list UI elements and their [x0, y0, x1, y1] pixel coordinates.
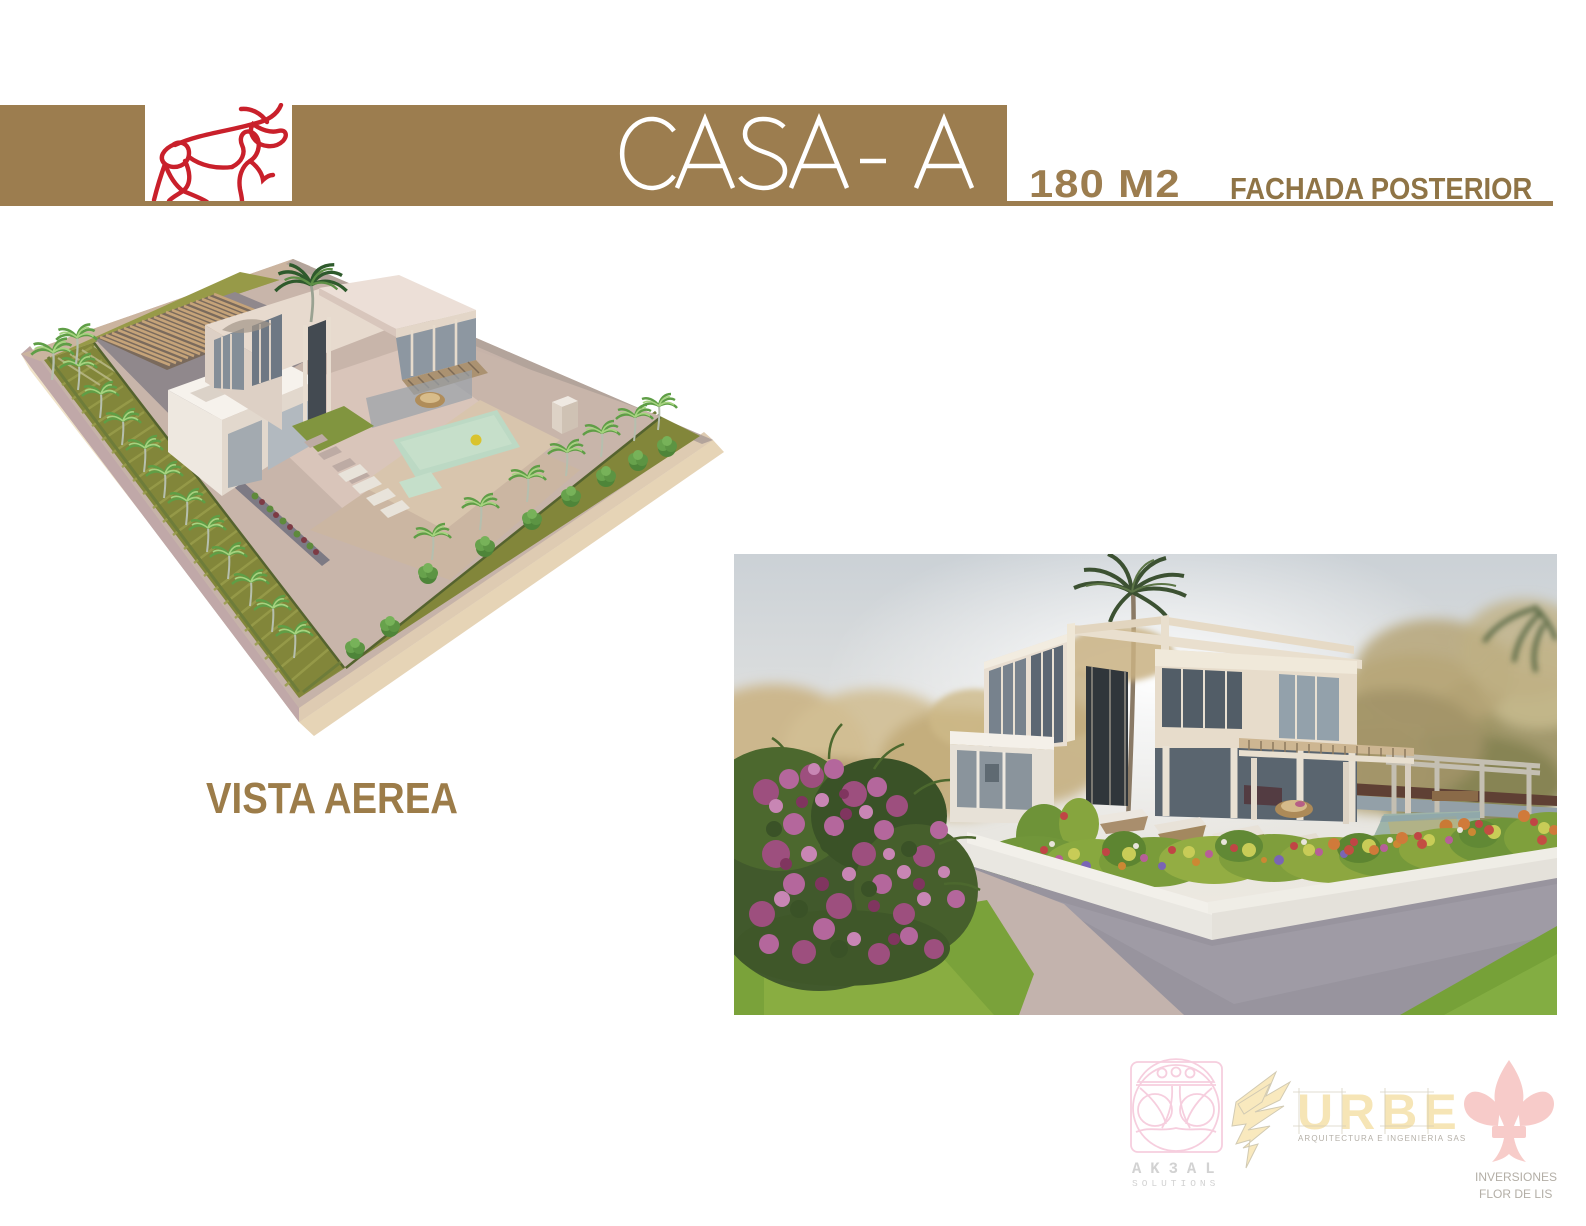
svg-text:ARQUITECTURA E INGENIERIA SAS: ARQUITECTURA E INGENIERIA SAS — [1298, 1134, 1466, 1143]
svg-text:AK3AL: AK3AL — [1132, 1160, 1224, 1178]
svg-text:FLOR DE LIS: FLOR DE LIS — [1479, 1187, 1552, 1201]
svg-text:INVERSIONES: INVERSIONES — [1475, 1170, 1557, 1184]
svg-text:SOLUTIONS: SOLUTIONS — [1132, 1178, 1219, 1189]
svg-text:URBE: URBE — [1297, 1084, 1463, 1140]
